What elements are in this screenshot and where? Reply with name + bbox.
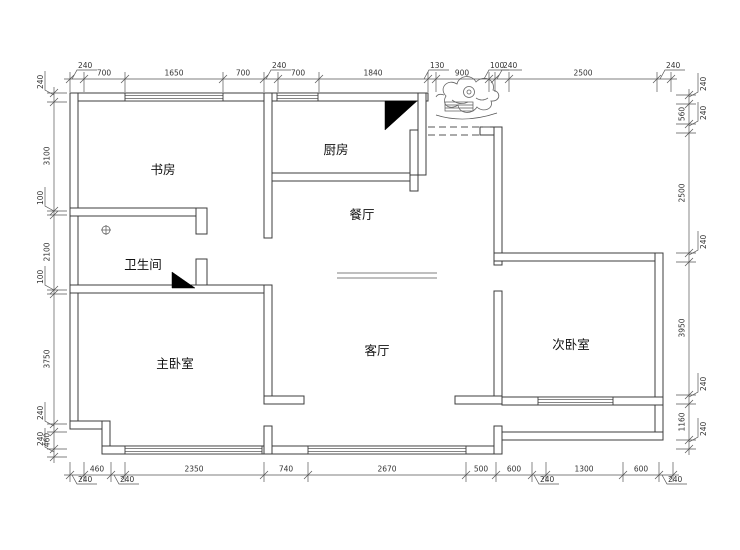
dimension-line-left: 240310010021001003750240460240 bbox=[36, 71, 67, 463]
wall-master-lower bbox=[264, 426, 272, 454]
dimension-value: 240 bbox=[78, 61, 93, 70]
wall-bathroom-bottom bbox=[70, 285, 272, 293]
floor-drain-icon bbox=[101, 225, 111, 235]
room-label-second-bedroom: 次卧室 bbox=[552, 337, 590, 352]
dimension-value: 700 bbox=[236, 69, 251, 78]
flue-shaft-triangle-bathroom bbox=[172, 272, 195, 288]
dimension-value: 460 bbox=[90, 465, 105, 474]
dimension-value: 600 bbox=[507, 465, 522, 474]
wall-right-vertical-main bbox=[494, 291, 502, 396]
dimension-value: 2100 bbox=[43, 242, 52, 261]
dimension-value: 2500 bbox=[573, 69, 592, 78]
dimension-value: 240 bbox=[699, 76, 708, 91]
room-label-dining: 餐厅 bbox=[349, 207, 374, 222]
dimension-value: 2500 bbox=[678, 183, 687, 202]
dimension-value: 240 bbox=[272, 61, 287, 70]
window-study-top bbox=[125, 93, 223, 101]
entry-right-jamb bbox=[480, 127, 494, 135]
dimension-line-right: 240560240250024039502401160240 bbox=[676, 73, 708, 455]
wall-right-vertical-lower bbox=[494, 426, 502, 454]
dimension-value: 2670 bbox=[377, 465, 396, 474]
divider-jamb bbox=[410, 173, 418, 191]
dimension-value: 1840 bbox=[363, 69, 382, 78]
dimension-value: 3100 bbox=[43, 146, 52, 165]
wall-master-stub bbox=[264, 396, 304, 404]
dimension-line-bottom: 240460240235074026705006002401300600240 bbox=[64, 462, 687, 484]
floor-plan-drawing: 书房 厨房 餐厅 卫生间 主卧室 客厅 次卧室 2407001650700240… bbox=[0, 0, 740, 550]
dimension-value: 240 bbox=[699, 105, 708, 120]
window-master-bottom bbox=[125, 446, 262, 454]
dimension-value: 240 bbox=[120, 475, 135, 484]
dimension-value: 2350 bbox=[184, 465, 203, 474]
dimension-value: 240 bbox=[503, 61, 518, 70]
bathroom-door-jamb-top bbox=[196, 208, 207, 234]
wall-study-bottom bbox=[70, 208, 197, 216]
room-label-kitchen: 厨房 bbox=[323, 142, 348, 157]
room-label-study: 书房 bbox=[150, 162, 175, 177]
floor-plan-canvas: 书房 厨房 餐厅 卫生间 主卧室 客厅 次卧室 2407001650700240… bbox=[0, 0, 740, 550]
wall-kitchen-dining-divider bbox=[272, 173, 418, 181]
dimension-value: 1300 bbox=[574, 465, 593, 474]
flue-shaft-triangle-kitchen bbox=[385, 101, 417, 130]
wall-flue-inner bbox=[410, 130, 418, 175]
window-secondbed bbox=[538, 397, 613, 405]
window-living-bottom bbox=[308, 446, 466, 454]
dimension-value: 600 bbox=[634, 465, 649, 474]
wall-master-living bbox=[264, 285, 272, 397]
wall-balcony-bottom bbox=[502, 432, 663, 440]
dimension-value: 560 bbox=[678, 107, 687, 122]
dimension-value: 3950 bbox=[678, 318, 687, 337]
dimension-value: 100 bbox=[36, 269, 45, 284]
dining-living-beam-line bbox=[337, 273, 437, 278]
wall-secondbed-top bbox=[494, 253, 663, 261]
decorative-sketch bbox=[436, 77, 499, 113]
dimension-value: 240 bbox=[699, 421, 708, 436]
room-label-living-room: 客厅 bbox=[364, 343, 389, 358]
dimension-value: 3750 bbox=[43, 349, 52, 368]
dimension-value: 240 bbox=[36, 405, 45, 420]
wall-left bbox=[70, 93, 78, 429]
dimension-value: 240 bbox=[666, 61, 681, 70]
dimension-value: 240 bbox=[668, 475, 683, 484]
dimension-value: 240 bbox=[36, 74, 45, 89]
dimension-value: 1160 bbox=[678, 412, 687, 431]
wall-top bbox=[70, 93, 428, 101]
dimension-value: 240 bbox=[699, 376, 708, 391]
room-label-master-bedroom: 主卧室 bbox=[156, 356, 194, 371]
dimension-value: 240 bbox=[36, 431, 45, 446]
wall-secondbed-right bbox=[655, 253, 663, 440]
dimension-value: 1650 bbox=[164, 69, 183, 78]
wall-study-kitchen bbox=[264, 93, 272, 238]
wall-kitchen-right bbox=[418, 93, 426, 175]
dimension-value: 240 bbox=[699, 234, 708, 249]
room-label-bathroom: 卫生间 bbox=[124, 257, 162, 272]
window-kitchen-top bbox=[277, 93, 318, 101]
dimension-line-top: 2407001650700240700184013090010024025002… bbox=[64, 61, 685, 92]
bathroom-door-jamb-bottom bbox=[196, 259, 207, 285]
dimension-value: 900 bbox=[455, 69, 470, 78]
dimension-value: 130 bbox=[430, 61, 445, 70]
dimension-annotations: 2407001650700240700184013090010024025002… bbox=[36, 61, 708, 484]
dimension-value: 500 bbox=[474, 465, 489, 474]
dimension-value: 740 bbox=[279, 465, 294, 474]
dimension-value: 700 bbox=[291, 69, 306, 78]
wall-living-stub-right bbox=[455, 396, 502, 404]
wall-right-vertical-upper bbox=[494, 127, 502, 265]
dimension-value: 240 bbox=[540, 475, 555, 484]
dimension-value: 100 bbox=[36, 190, 45, 205]
dimension-value: 700 bbox=[97, 69, 112, 78]
dimension-value: 240 bbox=[78, 475, 93, 484]
